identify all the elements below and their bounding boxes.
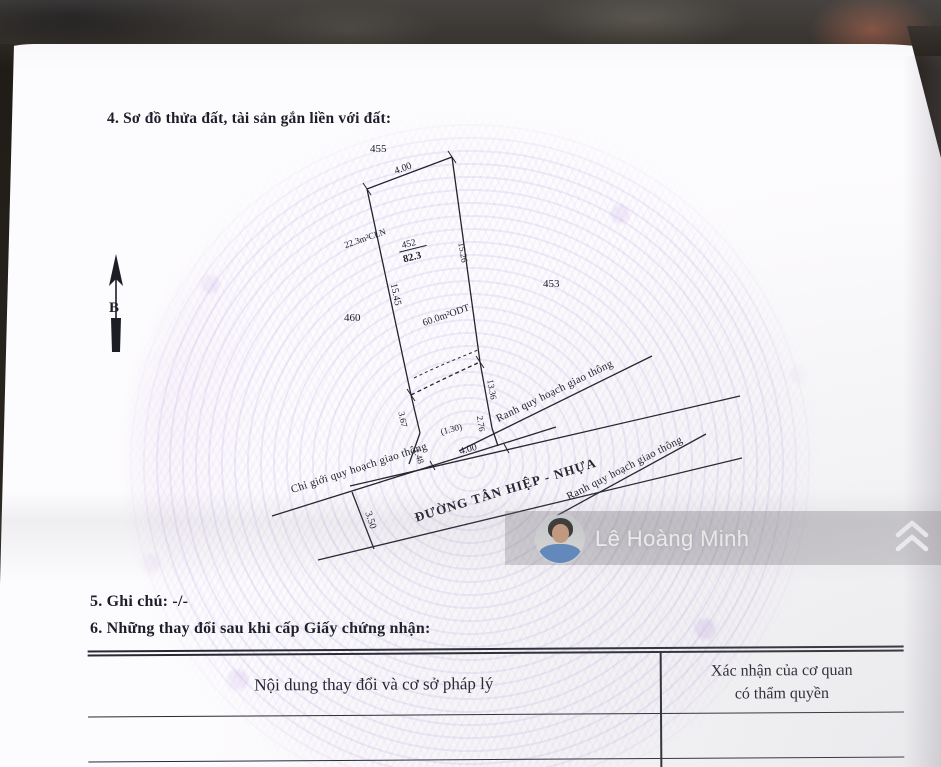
section4-title: 4. Sơ đồ thửa đất, tài sản gắn liền với …: [107, 110, 391, 128]
table-header-confirm-col: Xác nhận của cơ quan có thẩm quyền: [660, 652, 904, 713]
watermark-user-name: Lê Hoàng Minh: [595, 526, 749, 552]
col1-header-text: Nội dung thay đổi và cơ sở pháp lý: [254, 674, 493, 695]
col2-header-line1: Xác nhận của cơ quan: [711, 659, 853, 683]
section6-title: 6. Những thay đổi sau khi cấp Giấy chứng…: [90, 620, 431, 638]
avatar-shirt: [539, 544, 581, 563]
col2-header-line2: có thẩm quyền: [735, 682, 829, 706]
table-header-content-col: Nội dung thay đổi và cơ sở pháp lý: [88, 653, 660, 716]
table-empty-row: [88, 713, 904, 762]
double-chevron-up-icon[interactable]: [889, 514, 935, 560]
avatar[interactable]: [536, 515, 584, 563]
avatar-face: [552, 524, 569, 543]
changes-table: Nội dung thay đổi và cơ sở pháp lý Xác n…: [88, 650, 905, 767]
paper-right-shadow: [903, 56, 941, 767]
photo-of-land-certificate: 4. Sơ đồ thửa đất, tài sản gắn liền với …: [0, 0, 941, 767]
section5-note: 5. Ghi chú: -/-: [90, 593, 188, 611]
